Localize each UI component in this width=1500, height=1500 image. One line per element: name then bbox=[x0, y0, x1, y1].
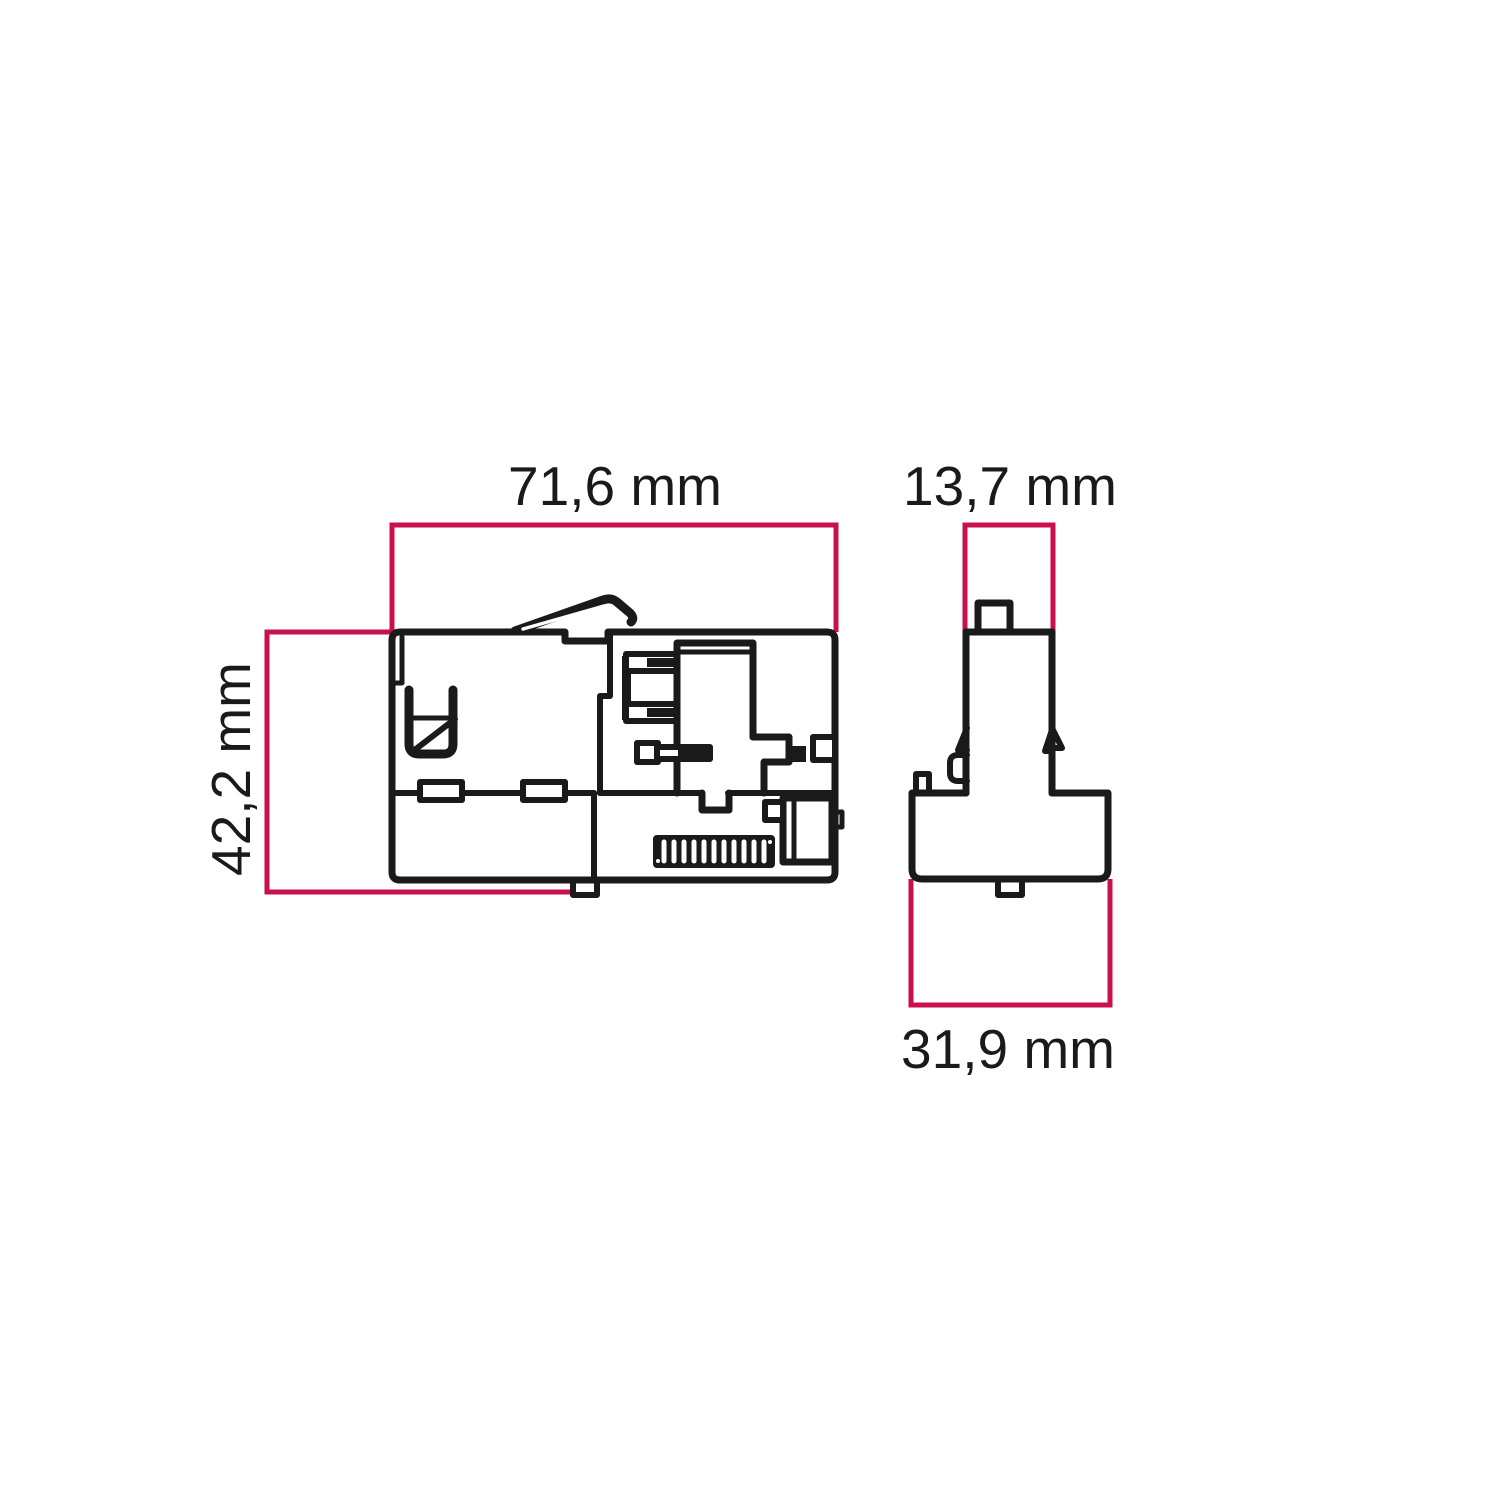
comb-finger-middle-contact bbox=[647, 708, 677, 717]
tongue-outline bbox=[677, 643, 753, 793]
lower-right-small-box bbox=[765, 802, 783, 820]
outline-drawing bbox=[392, 599, 1108, 895]
dim-label-side-bottom-width: 31,9 mm bbox=[901, 1018, 1115, 1080]
lower-right-box bbox=[783, 798, 832, 862]
dimension-drawing-svg: 71,6 mm 13,7 mm 42,2 mm 31,9 mm bbox=[0, 0, 1500, 1500]
tongue-foot bbox=[702, 793, 729, 810]
dimension-labels: 71,6 mm 13,7 mm 42,2 mm 31,9 mm bbox=[200, 455, 1117, 1080]
rib-dot-left bbox=[656, 859, 660, 863]
divider-tab-right bbox=[523, 782, 565, 800]
dim-extent-front-width bbox=[392, 525, 836, 632]
technical-drawing-canvas: 71,6 mm 13,7 mm 42,2 mm 31,9 mm bbox=[0, 0, 1500, 1500]
contact-bar-fill bbox=[678, 749, 708, 757]
dim-label-side-top-width: 13,7 mm bbox=[903, 455, 1117, 517]
dim-extent-front-height bbox=[267, 632, 573, 892]
comb-finger-top-contact bbox=[647, 658, 677, 667]
side-top-tab bbox=[978, 603, 1010, 632]
upper-section-divider bbox=[600, 632, 610, 793]
lower-right-small-box-group bbox=[765, 802, 783, 820]
dim-label-front-width: 71,6 mm bbox=[508, 455, 722, 517]
lower-right-box-group bbox=[783, 798, 832, 862]
right-edge-box bbox=[813, 737, 835, 760]
tongue-right-hook bbox=[753, 737, 789, 793]
divider-tab-left bbox=[420, 782, 462, 800]
front-view bbox=[392, 599, 842, 895]
rib-dot-right bbox=[768, 840, 772, 844]
side-view bbox=[912, 603, 1108, 895]
dim-label-front-height: 42,2 mm bbox=[200, 662, 262, 876]
side-base-outline bbox=[912, 793, 1108, 879]
contact-bar-fill-group bbox=[678, 749, 708, 757]
